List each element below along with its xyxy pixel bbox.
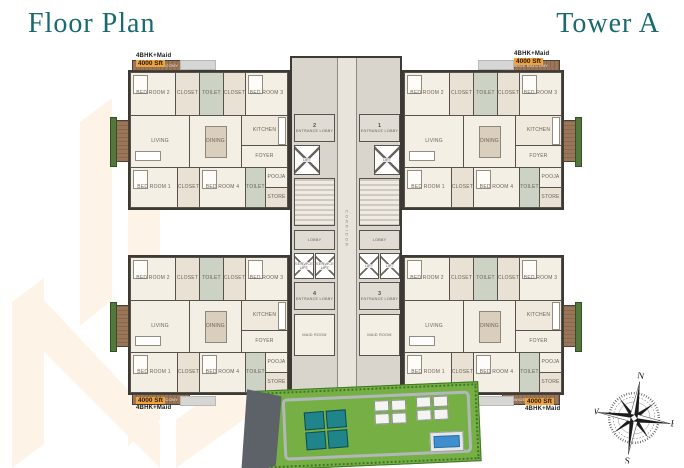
room-label: KITCHEN [527, 128, 550, 134]
room-label: BED ROOM 2 [136, 91, 169, 97]
maid-room-label: MAID ROOM [302, 333, 326, 337]
room-closet: CLOSET [451, 167, 474, 208]
room-closet: CLOSET [497, 72, 520, 116]
room-label: CLOSET [177, 91, 198, 97]
compass-west-label: W [589, 406, 601, 418]
room-label: BED ROOM 4 [480, 185, 513, 191]
room-toilet: TOILET [473, 257, 498, 301]
room-label: BED ROOM 4 [206, 185, 239, 191]
apartment-unit-bottom-right: WIDE BALCONY WIDE BALCONY BED ROOM 2 CLO… [402, 255, 564, 395]
room-label: BED ROOM 4 [480, 370, 513, 376]
room-label: TOILET [476, 276, 495, 282]
room-kitchen: KITCHEN [241, 300, 288, 331]
staircase [294, 178, 335, 226]
unit-type-label: 4BHK+Maid [136, 53, 171, 59]
tower-block [416, 396, 431, 408]
room-toilet: TOILET [199, 257, 224, 301]
room-toilet: TOILET [245, 352, 266, 393]
room-label: STORE [541, 380, 559, 386]
unit-type-label: 4BHK+Maid [525, 406, 560, 412]
room-bed-room-3: BED ROOM 3 [519, 257, 562, 301]
room-label: LIVING [151, 324, 169, 330]
lobby-label: LOBBY [373, 238, 387, 242]
room-label: FOYER [255, 339, 273, 345]
room-label: BED ROOM 4 [206, 370, 239, 376]
tower-block [416, 409, 431, 421]
room-label: BED ROOM 3 [250, 91, 283, 97]
room-label: TOILET [202, 91, 221, 97]
site-key-plan [254, 381, 481, 468]
compass-south-label: S [624, 456, 631, 468]
unit-card-top-left: 4BHK+Maid 4000 Sft [136, 53, 171, 67]
room-label: DINING [206, 324, 225, 330]
room-label: CLOSET [451, 91, 472, 97]
tower-block [326, 409, 347, 429]
tower-block [304, 411, 325, 431]
ledge [180, 60, 216, 70]
service-lift-label: SERVICE LIFT [316, 262, 334, 270]
room-pooja: POOJA [539, 352, 562, 373]
unit-area-badge: 4000 Sft [514, 58, 543, 65]
tower-block [391, 412, 406, 424]
room-dining: DINING [463, 115, 516, 168]
deck-with-planter [563, 305, 577, 347]
room-label: FOYER [529, 339, 547, 345]
room-label: FOYER [529, 154, 547, 160]
unit-area-badge: 4000 Sft [525, 398, 554, 405]
ledge [478, 396, 514, 406]
room-label: BED ROOM 3 [250, 276, 283, 282]
room-bed-room-3: BED ROOM 3 [519, 72, 562, 116]
unit-area-badge: 4000 Sft [136, 397, 165, 404]
room-closet: CLOSET [223, 257, 246, 301]
room-foyer: FOYER [515, 330, 562, 353]
tower-block [305, 431, 326, 451]
room-dining: DINING [189, 115, 242, 168]
maid-room-label: MAID ROOM [367, 333, 391, 337]
ledge [180, 396, 216, 406]
room-foyer: FOYER [241, 330, 288, 353]
room-toilet: TOILET [473, 72, 498, 116]
room-label: CLOSET [178, 185, 199, 191]
lobby-label: ENTRANCE LOBBY [296, 297, 333, 301]
lobby-label: ENTRANCE LOBBY [296, 129, 333, 133]
room-bed-room-4: BED ROOM 4 [473, 352, 520, 393]
room-label: BED ROOM 3 [524, 276, 557, 282]
tower-block [327, 429, 348, 449]
room-label: CLOSET [224, 91, 245, 97]
room-living: LIVING [130, 300, 190, 353]
entrance-lobby-1: 1 ENTRANCE LOBBY [359, 114, 400, 142]
room-label: POOJA [542, 175, 560, 181]
deck-with-planter [115, 120, 129, 162]
room-label: BED ROOM 1 [137, 185, 170, 191]
lobby-label: ENTRANCE LOBBY [361, 297, 398, 301]
room-label: BED ROOM 1 [411, 185, 444, 191]
service-lift-label: SERVICE LIFT [295, 262, 313, 270]
room-label: DINING [206, 139, 225, 145]
lift-shaft: LIFT [380, 253, 400, 279]
room-kitchen: KITCHEN [515, 115, 562, 146]
entrance-lobby-2: 2 ENTRANCE LOBBY [294, 114, 335, 142]
room-bed-room-1: BED ROOM 1 [130, 167, 178, 208]
room-dining: DINING [189, 300, 242, 353]
lobby-label: ENTRANCE LOBBY [361, 129, 398, 133]
service-lift: SERVICE LIFT [294, 253, 314, 279]
room-label: CLOSET [452, 185, 473, 191]
room-toilet: TOILET [519, 352, 540, 393]
room-living: LIVING [404, 115, 464, 168]
room-bed-room-2: BED ROOM 2 [404, 257, 450, 301]
pool-deck [429, 431, 464, 452]
tower-block [391, 399, 406, 411]
deck-with-planter [563, 120, 577, 162]
room-foyer: FOYER [515, 145, 562, 168]
deck-with-planter [115, 305, 129, 347]
floor-plan: WIDE BALCONY WIDE BALCONY BED ROOM 2 CLO… [128, 52, 564, 404]
compass-rose: N E S W [587, 366, 680, 468]
room-label: BED ROOM 2 [410, 276, 443, 282]
room-label: LIVING [425, 139, 443, 145]
lift-label: LIFT [383, 158, 392, 162]
room-label: TOILET [202, 276, 221, 282]
other-tower-block [416, 395, 449, 420]
room-label: CLOSET [452, 370, 473, 376]
lift-shaft: LIFT [294, 145, 320, 175]
room-label: STORE [541, 195, 559, 201]
lift-shaft: LIFT [359, 253, 379, 279]
room-pooja: POOJA [265, 352, 288, 373]
page: Floor Plan Tower A 4BHK+Maid 4000 Sft 4B… [0, 0, 684, 468]
lobby-label: LOBBY [308, 238, 322, 242]
apartment-unit-top-left: WIDE BALCONY WIDE BALCONY BED ROOM 2 CLO… [128, 70, 290, 210]
room-bed-room-3: BED ROOM 3 [245, 72, 288, 116]
room-label: STORE [267, 380, 285, 386]
room-label: DINING [480, 139, 499, 145]
corridor-label: CORRIDOR [345, 210, 350, 248]
room-label: CLOSET [498, 91, 519, 97]
room-closet: CLOSET [175, 72, 200, 116]
staircase [359, 178, 400, 226]
entrance-lobby-3: 3 ENTRANCE LOBBY [359, 282, 400, 310]
room-kitchen: KITCHEN [241, 115, 288, 146]
room-label: TOILET [520, 370, 539, 376]
room-bed-room-1: BED ROOM 1 [404, 167, 452, 208]
swimming-pool [434, 435, 460, 448]
room-label: BED ROOM 1 [137, 370, 170, 376]
room-living: LIVING [404, 300, 464, 353]
apartment-unit-bottom-left: WIDE BALCONY WIDE BALCONY BED ROOM 2 CLO… [128, 255, 290, 395]
highlighted-tower-a-block [304, 409, 349, 450]
room-closet: CLOSET [177, 352, 200, 393]
room-bed-room-4: BED ROOM 4 [199, 167, 246, 208]
tower-title: Tower A [556, 8, 660, 40]
tower-block [433, 395, 448, 407]
room-bed-room-4: BED ROOM 4 [199, 352, 246, 393]
room-closet: CLOSET [449, 72, 474, 116]
room-label: POOJA [268, 175, 286, 181]
service-lift: SERVICE LIFT [315, 253, 335, 279]
room-bed-room-4: BED ROOM 4 [473, 167, 520, 208]
lift-label: LIFT [365, 264, 374, 268]
room-label: CLOSET [498, 276, 519, 282]
room-label: KITCHEN [253, 313, 276, 319]
room-label: KITCHEN [253, 128, 276, 134]
room-store: STORE [539, 372, 562, 393]
room-closet: CLOSET [223, 72, 246, 116]
unit-type-label: 4BHK+Maid [514, 51, 549, 57]
lobby: LOBBY [359, 230, 400, 250]
tower-block [374, 400, 389, 412]
unit-card-bottom-left: 4000 Sft 4BHK+Maid [136, 397, 171, 411]
room-label: POOJA [542, 360, 560, 366]
other-tower-block [374, 399, 407, 424]
room-closet: CLOSET [449, 257, 474, 301]
room-closet: CLOSET [177, 167, 200, 208]
room-closet: CLOSET [497, 257, 520, 301]
room-label: FOYER [255, 154, 273, 160]
unit-area-badge: 4000 Sft [136, 60, 165, 67]
room-label: TOILET [520, 185, 539, 191]
compass-north-label: N [636, 370, 645, 382]
room-store: STORE [539, 187, 562, 208]
room-pooja: POOJA [265, 167, 288, 188]
room-store: STORE [265, 187, 288, 208]
room-label: BED ROOM 2 [136, 276, 169, 282]
room-toilet: TOILET [199, 72, 224, 116]
room-label: STORE [267, 195, 285, 201]
room-closet: CLOSET [175, 257, 200, 301]
room-label: CLOSET [451, 276, 472, 282]
room-bed-room-2: BED ROOM 2 [130, 257, 176, 301]
room-bed-room-1: BED ROOM 1 [130, 352, 178, 393]
room-bed-room-3: BED ROOM 3 [245, 257, 288, 301]
corridor: CORRIDOR [337, 58, 357, 400]
room-kitchen: KITCHEN [515, 300, 562, 331]
room-toilet: TOILET [245, 167, 266, 208]
page-title: Floor Plan [28, 8, 155, 40]
tower-block [374, 413, 389, 425]
room-label: TOILET [246, 370, 265, 376]
apartment-unit-top-right: WIDE BALCONY WIDE BALCONY BED ROOM 2 CLO… [402, 70, 564, 210]
room-label: CLOSET [224, 276, 245, 282]
unit-type-label: 4BHK+Maid [136, 405, 171, 411]
room-bed-room-2: BED ROOM 2 [404, 72, 450, 116]
lift-label: LIFT [386, 264, 395, 268]
room-pooja: POOJA [539, 167, 562, 188]
ledge [478, 60, 514, 70]
lift-label: LIFT [303, 158, 312, 162]
entrance-lobby-4: 4 ENTRANCE LOBBY [294, 282, 335, 310]
lobby: LOBBY [294, 230, 335, 250]
room-label: DINING [480, 324, 499, 330]
room-foyer: FOYER [241, 145, 288, 168]
central-core: CORRIDOR 2 ENTRANCE LOBBY 1 ENTRANCE LOB… [290, 56, 402, 402]
room-toilet: TOILET [519, 167, 540, 208]
tower-block [433, 408, 448, 420]
room-label: BED ROOM 2 [410, 91, 443, 97]
room-dining: DINING [463, 300, 516, 353]
room-label: TOILET [246, 185, 265, 191]
room-label: KITCHEN [527, 313, 550, 319]
room-label: BED ROOM 1 [411, 370, 444, 376]
compass-east-label: E [670, 418, 678, 430]
room-label: CLOSET [178, 370, 199, 376]
unit-card-top-right: 4BHK+Maid 4000 Sft [514, 51, 549, 65]
room-label: BED ROOM 3 [524, 91, 557, 97]
room-living: LIVING [130, 115, 190, 168]
room-bed-room-2: BED ROOM 2 [130, 72, 176, 116]
room-label: LIVING [425, 324, 443, 330]
room-label: TOILET [476, 91, 495, 97]
maid-room: MAID ROOM [294, 314, 335, 356]
maid-room: MAID ROOM [359, 314, 400, 356]
room-label: LIVING [151, 139, 169, 145]
room-label: POOJA [268, 360, 286, 366]
room-label: CLOSET [177, 276, 198, 282]
unit-card-bottom-right: 4000 Sft 4BHK+Maid [525, 398, 560, 412]
lift-shaft: LIFT [374, 145, 400, 175]
